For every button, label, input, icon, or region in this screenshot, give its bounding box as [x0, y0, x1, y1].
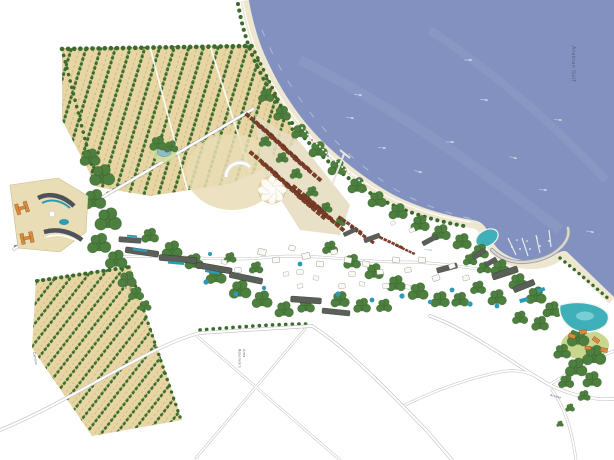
access-road-label: Acceso: [550, 393, 562, 400]
masterplan-map: Arabian Gulf Area Reservoirs Zona de Cul…: [0, 0, 614, 460]
reservoir-label-line2: Reservoirs: [237, 349, 241, 368]
water-label: Arabian Gulf: [570, 46, 576, 82]
reservoir-label-line1: Area: [242, 349, 246, 357]
orchard-fields-southwest: [32, 266, 182, 436]
apartment-slabs: [119, 227, 536, 316]
west-resort: [10, 178, 88, 252]
masterplan-svg: Arabian Gulf Area Reservoirs Zona de Cul…: [0, 0, 614, 460]
waterpark-lagoon: [560, 302, 609, 332]
west-road-label: Camino: [32, 351, 38, 364]
